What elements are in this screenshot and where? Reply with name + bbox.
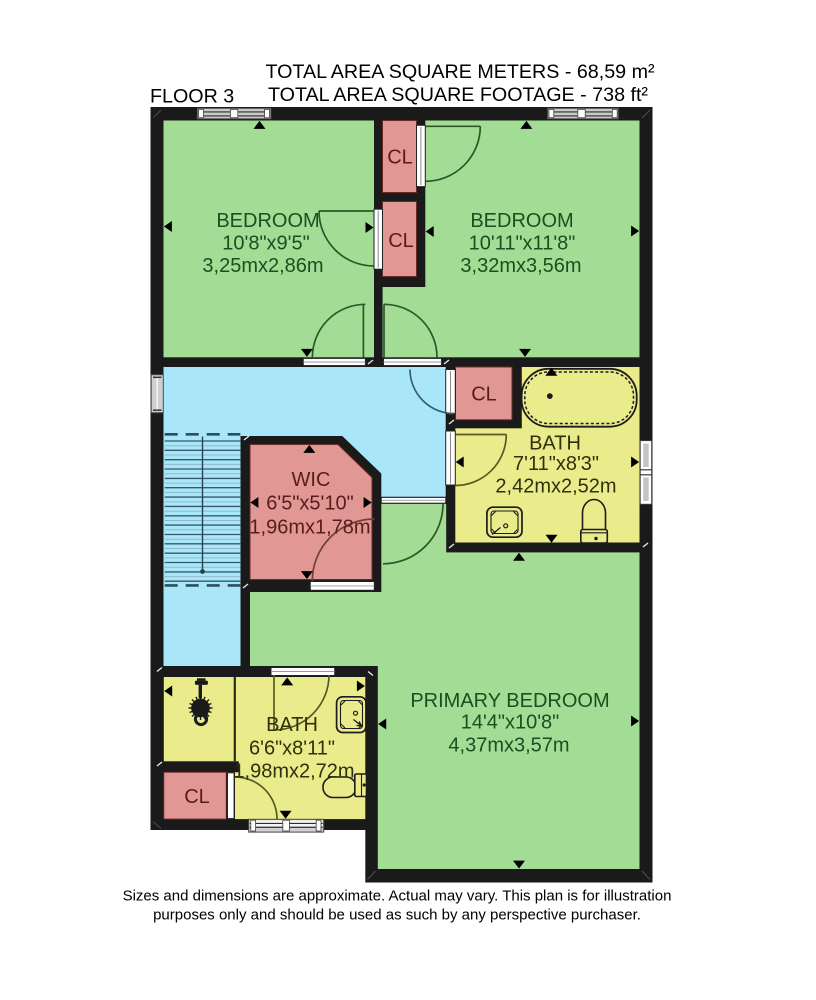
svg-text:10'8"x9'5": 10'8"x9'5" xyxy=(222,233,309,255)
svg-text:Sizes and dimensions are appro: Sizes and dimensions are approximate. Ac… xyxy=(123,888,672,905)
svg-text:TOTAL AREA SQUARE FOOTAGE - 73: TOTAL AREA SQUARE FOOTAGE - 738 ft² xyxy=(268,84,648,106)
svg-text:10'11"x11'8": 10'11"x11'8" xyxy=(469,233,576,255)
svg-text:CL: CL xyxy=(387,147,413,169)
svg-text:6'6"x8'11": 6'6"x8'11" xyxy=(249,738,335,760)
svg-text:TOTAL AREA SQUARE METERS - 68,: TOTAL AREA SQUARE METERS - 68,59 m² xyxy=(265,61,655,83)
svg-text:4,37mx3,57m: 4,37mx3,57m xyxy=(448,735,569,757)
svg-text:1,96mx1,78m: 1,96mx1,78m xyxy=(249,517,370,539)
svg-text:1,98mx2,72m: 1,98mx2,72m xyxy=(233,761,354,783)
svg-text:BATH: BATH xyxy=(266,714,318,736)
svg-text:6'5"x5'10": 6'5"x5'10" xyxy=(266,493,353,515)
svg-text:CL: CL xyxy=(184,786,210,808)
svg-text:BATH: BATH xyxy=(529,433,581,455)
svg-text:3,25mx2,86m: 3,25mx2,86m xyxy=(202,255,323,277)
svg-text:purposes only and should be us: purposes only and should be used as such… xyxy=(153,907,641,924)
svg-text:2,42mx2,52m: 2,42mx2,52m xyxy=(495,476,616,498)
svg-text:CL: CL xyxy=(388,230,414,252)
svg-text:7'11"x8'3": 7'11"x8'3" xyxy=(513,453,599,475)
svg-text:WIC: WIC xyxy=(292,469,331,491)
svg-text:PRIMARY BEDROOM: PRIMARY BEDROOM xyxy=(410,690,609,712)
svg-text:FLOOR 3: FLOOR 3 xyxy=(150,86,234,108)
svg-text:3,32mx3,56m: 3,32mx3,56m xyxy=(460,255,581,277)
svg-text:14'4"x10'8": 14'4"x10'8" xyxy=(461,712,560,734)
svg-text:BEDROOM: BEDROOM xyxy=(470,210,573,232)
svg-text:CL: CL xyxy=(471,384,497,406)
svg-text:BEDROOM: BEDROOM xyxy=(216,210,319,232)
